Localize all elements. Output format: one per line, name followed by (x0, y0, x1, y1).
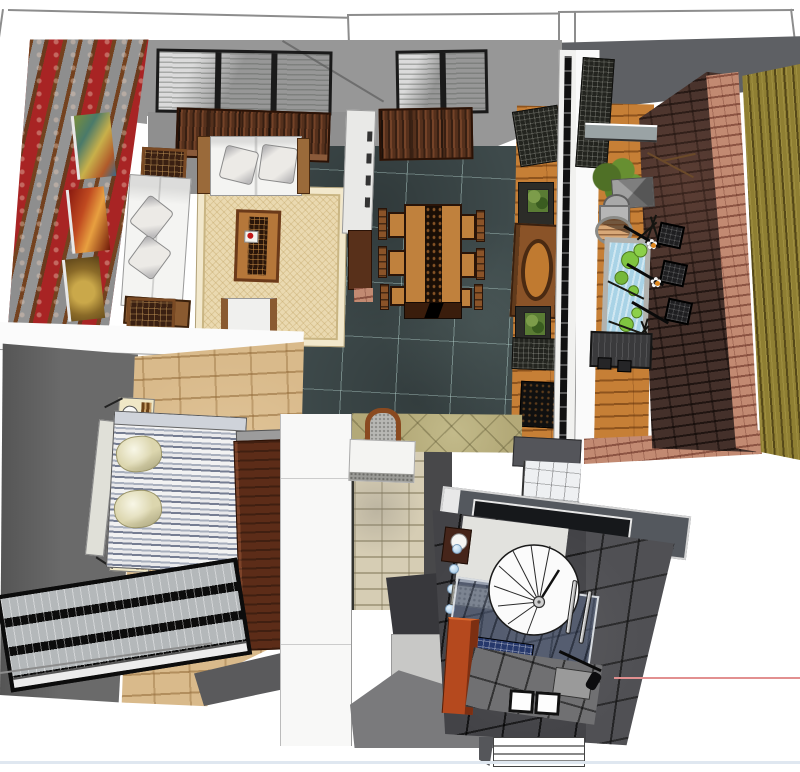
sofa-arm (297, 138, 310, 194)
wall-seam (281, 644, 351, 645)
potted-plant (527, 189, 549, 213)
ground-edge-strip (0, 761, 800, 764)
apartment-top-view: ✿ ✿ (0, 0, 800, 772)
daisy-flower: ✿ (650, 276, 668, 294)
wall-edge-line (558, 12, 560, 43)
dining-chair-back (474, 284, 483, 310)
living-skylight (155, 48, 332, 115)
dining-chair-back (378, 208, 387, 240)
dining-skylight (395, 49, 488, 115)
red-axis-line (614, 677, 800, 679)
moon-gate-opening (519, 238, 554, 302)
divider-cabinet-base (348, 230, 372, 290)
plant-console (518, 182, 554, 226)
lily-pad (614, 271, 628, 285)
divider-cabinet-white (342, 110, 376, 235)
dining-bench (404, 302, 462, 319)
dining-table (404, 204, 462, 306)
glass-shelf (585, 123, 658, 143)
daisy-center (651, 243, 656, 248)
glass-ball (452, 544, 462, 554)
glass-ball (449, 564, 459, 574)
coffee-table (234, 209, 281, 283)
coffee-table-lattice (247, 217, 268, 276)
table-carved-runner (425, 206, 442, 304)
skylight-mullion (440, 53, 447, 111)
step-line (494, 753, 584, 755)
wall-seam (281, 478, 351, 479)
dining-wall-cabinet (379, 107, 474, 161)
step-line (494, 745, 584, 747)
balcony-console-set (589, 331, 652, 369)
sofa-arm (197, 136, 211, 194)
stool (597, 357, 611, 369)
counter-granite-edge (349, 472, 413, 482)
daisy-flower: ✿ (646, 238, 664, 256)
bath-mat (534, 691, 561, 716)
bath-mat (508, 689, 535, 714)
potted-plant (524, 312, 546, 336)
wall-edge-line (8, 9, 348, 18)
sofa-pillow (258, 144, 299, 185)
divider-dark-marks (364, 131, 372, 217)
hall-white-counter (348, 439, 415, 483)
painting-red (66, 186, 110, 254)
lattice-lamp-planter (664, 298, 693, 326)
wall-edge-line (0, 9, 3, 57)
skylight-mullion (271, 53, 278, 111)
dining-chair-back (378, 246, 387, 278)
painting-gold (62, 256, 105, 322)
wall-edge-line (558, 9, 794, 13)
daisy-center (655, 281, 660, 286)
armchair (221, 298, 277, 332)
bench-shadow (424, 303, 443, 318)
painting-green (71, 112, 116, 180)
dining-chair-back (380, 284, 389, 310)
dining-chair-back (476, 248, 485, 280)
stool (617, 360, 631, 372)
wall-edge-line (347, 13, 559, 16)
hall-white-wall (280, 414, 352, 746)
divider-foot (354, 288, 373, 302)
skylight-mullion (215, 52, 222, 110)
dining-chair-back (476, 210, 485, 242)
